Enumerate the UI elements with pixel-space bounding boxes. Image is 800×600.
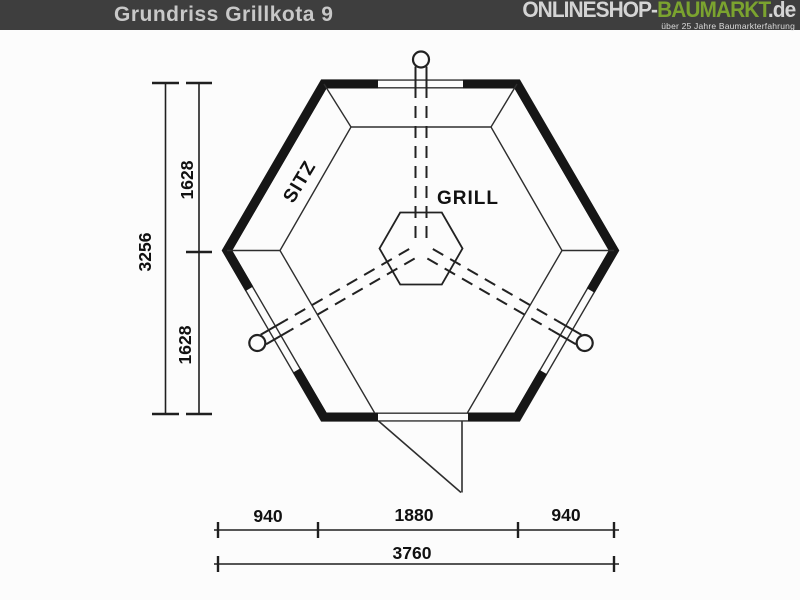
- wall-bottom-right-corner: [468, 372, 543, 417]
- pipe-end-cap: [413, 52, 429, 68]
- wall-face-outlines: [223, 80, 619, 421]
- dimension-left: 3256 1628 1628: [135, 83, 212, 414]
- wall-bottom-left-corner: [297, 370, 378, 417]
- radial-top-right: [491, 84, 517, 127]
- floor-plan-drawing: SITZ GRILL 3256 1628 1628 940 1880 940: [0, 0, 800, 600]
- solid-wall-segments: [227, 84, 614, 417]
- dim-bottom-right: 940: [551, 505, 580, 525]
- dim-bottom-total: 3760: [393, 543, 432, 563]
- dim-bottom-center: 1880: [395, 505, 434, 525]
- grill-hexagon: [380, 213, 463, 285]
- dim-left-total: 3256: [135, 232, 155, 271]
- radial-top-left: [324, 84, 351, 127]
- outer-wall-face: [223, 80, 619, 421]
- dim-bottom-left: 940: [253, 506, 282, 526]
- dim-left-lower: 1628: [175, 325, 195, 364]
- dim-left-upper: 1628: [177, 160, 197, 199]
- bench-corner-radials: [227, 84, 614, 251]
- bench-front-outline: [280, 127, 562, 413]
- seat-label: SITZ: [279, 157, 320, 207]
- grill-label: GRILL: [437, 188, 499, 209]
- dimension-bottom: 940 1880 940 3760: [214, 505, 619, 572]
- page: Grundriss Grillkota 9 ONLINESHOP-BAUMARK…: [0, 0, 800, 600]
- door-swing: [379, 421, 463, 493]
